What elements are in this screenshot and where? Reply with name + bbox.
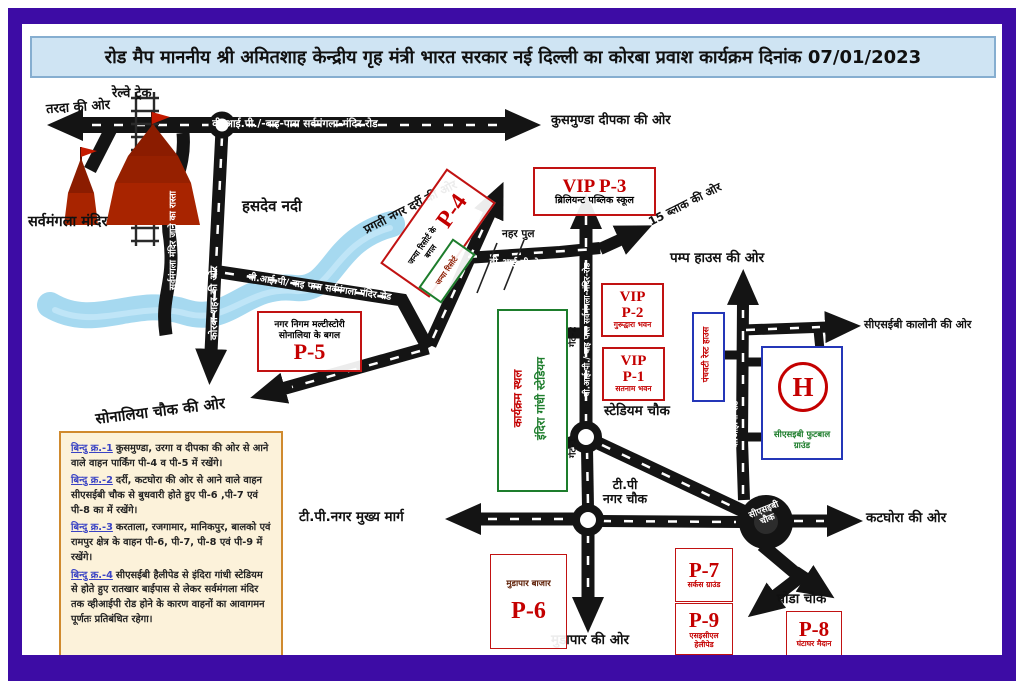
label-football-ground: सीएसइबी फुटबाल ग्राउंड (765, 430, 839, 452)
parking-p9-code: P-9 (689, 610, 719, 631)
parking-p6-desc: मुडापार बाजार (506, 580, 550, 590)
parking-p5-desc1: नगर निगम मल्टीस्टोरी (274, 320, 344, 330)
road-label-vip-road-right: वी.आई.पी-रोड (730, 375, 741, 475)
parking-p8-desc: घंटाघर मैदान (797, 640, 832, 649)
note-4: बिन्दु क्र.-4सीएसईबी हैलीपेड से इंदिरा ग… (71, 569, 271, 628)
parking-box-p9: P-9 एसइसीएल हेलीपेड (675, 603, 733, 655)
label-toward-kusmunda: कुसमुण्डा दीपका की ओर (551, 110, 671, 128)
parking-p5-code: P-5 (294, 341, 326, 363)
parking-box-p7: P-7 सर्कस ग्राउंड (675, 548, 733, 602)
vip-p1-desc: सतनाम भवन (615, 385, 651, 394)
road-label-temple-path: सर्वमंगला मंदिर जाने का रास्ता (166, 166, 179, 316)
title-bar: रोड मैप माननीय श्री अमितशाह केन्द्रीय गृ… (30, 36, 996, 78)
parking-p6-code: P-6 (511, 599, 546, 623)
note-2-head: बिन्दु क्र.-2 (71, 475, 113, 486)
helipad-icon: H (778, 362, 828, 412)
vip-box-p2: VIP P-2 गुरूद्वारा भवन (601, 283, 664, 337)
label-stadium-chowk: स्टेडियम चौक (604, 401, 670, 419)
road-label-vip-bypass-top: वी.आई.पी./-बाइ-पास सर्वमंगला-मंदिर रोड (120, 117, 470, 131)
parking-p7-code: P-7 (689, 560, 719, 581)
parking-box-p5: नगर निगम मल्टीस्टोरी सोनालिया के बगल P-5 (257, 311, 362, 372)
stadium-venue-box (497, 309, 568, 492)
vip-p2-line1: VIP (620, 290, 646, 306)
note-1: बिन्दु क्र.-1कुसमुण्डा, उरगा व दीपका की … (71, 442, 271, 471)
vip-p3-code: VIP P-3 (563, 177, 627, 196)
label-tp-nagar-chowk-line1: टी.पी (585, 478, 665, 492)
note-3-head: बिन्दु क्र.-3 (71, 522, 113, 533)
label-rest-house: पंचवटी रेस्ट हाउस (701, 300, 712, 410)
parking-p8-code: P-8 (799, 619, 829, 640)
note-1-head: बिन्दु क्र.-1 (71, 443, 113, 454)
helipad-letter: H (792, 372, 813, 403)
road-map-page: रोड मैप माननीय श्री अमितशाह केन्द्रीय गृ… (0, 0, 1024, 689)
vip-p2-line2: P-2 (622, 306, 644, 322)
road-label-tp-nagar-main: टी.पी.नगर मुख्य मार्ग (299, 507, 404, 525)
label-tp-nagar-chowk: टी.पी नगर चौक (585, 478, 665, 506)
vip-p2-desc: गुरूद्वारा भवन (614, 321, 652, 330)
parking-p9-desc: एसइसीएल हेलीपेड (679, 631, 729, 649)
parking-p4-resort-label: जन्या रिसोर्ट (434, 255, 459, 286)
parking-box-p8: P-8 घंटाघर मैदान (786, 611, 842, 657)
vip-p1-line2: P-1 (623, 370, 645, 386)
road-label-vip-bypass-vertical: वी.आई.पी./ बाइ पास सर्वमंगला-मंदिर-रोड (582, 230, 593, 430)
label-railway-track: रेल्वे ट्रेक (112, 83, 151, 101)
vip-box-p1: VIP P-1 सतनाम भवन (602, 347, 665, 401)
road-label-toward-korba-city: कोरबा शहर की ओर (206, 243, 220, 363)
label-tp-nagar-chowk-line2: नगर चौक (585, 492, 665, 506)
parking-p7-desc: सर्कस ग्राउंड (688, 581, 721, 590)
label-sarvamangala-temple: सर्वमंगला मंदिर (28, 211, 107, 231)
vip-p1-line1: VIP (621, 354, 647, 370)
vip-p3-desc: ब्रिलियन्ट पब्लिक स्कूल (555, 196, 634, 207)
page-title: रोड मैप माननीय श्री अमितशाह केन्द्रीय गृ… (105, 45, 921, 69)
note-3: बिन्दु क्र.-3करताला, रजगामार, मानिकपुर, … (71, 521, 271, 565)
notes-box: बिन्दु क्र.-1कुसमुण्डा, उरगा व दीपका की … (59, 431, 283, 659)
label-venue-text: कार्यक्रम स्थल (511, 339, 526, 459)
parking-box-p6: मुडापार बाजार P-6 (490, 554, 567, 649)
label-toward-cseb-colony: सीएसईबी कालोनी की ओर (864, 317, 971, 332)
note-2: बिन्दु क्र.-2दर्री, कटघोरा की ओर से आने … (71, 474, 271, 518)
label-toward-katghora: कटघोरा की ओर (866, 508, 946, 526)
label-canal-bridge: नहर पुल (502, 227, 534, 241)
label-ghoda-chowk: घोडा चौक (777, 589, 826, 607)
label-hasdeo-river: हसदेव नदी (242, 196, 302, 216)
vip-box-p3: VIP P-3 ब्रिलियन्ट पब्लिक स्कूल (533, 167, 656, 216)
label-stadium-name: इंदिरा गांधी स्टेडियम (534, 314, 549, 484)
label-toward-pump-house: पम्प हाउस की ओर (670, 248, 764, 266)
note-4-head: बिन्दु क्र.-4 (71, 570, 113, 581)
